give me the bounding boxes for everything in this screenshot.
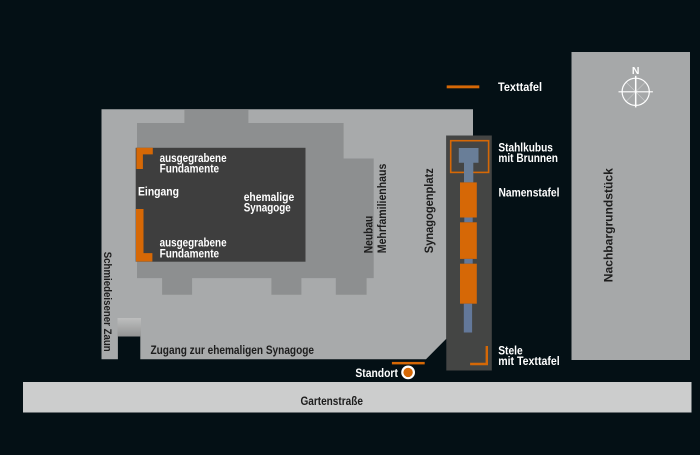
svg-text:Standort: Standort (355, 366, 398, 380)
svg-text:Synagogenplatz: Synagogenplatz (424, 168, 436, 253)
svg-text:Gartenstraße: Gartenstraße (300, 394, 363, 408)
svg-text:N: N (632, 65, 640, 77)
svg-text:Mehrfamilienhaus: Mehrfamilienhaus (377, 164, 389, 254)
svg-text:Schmiedeisener Zaun: Schmiedeisener Zaun (101, 252, 113, 352)
svg-text:Synagoge: Synagoge (244, 201, 291, 215)
svg-text:Neubau: Neubau (364, 216, 376, 254)
svg-text:Nachbargrundstück: Nachbargrundstück (601, 168, 615, 282)
svg-text:Eingang: Eingang (138, 184, 179, 198)
svg-text:Fundamente: Fundamente (160, 162, 220, 176)
svg-text:Namenstafel: Namenstafel (499, 185, 560, 199)
svg-text:Texttafel: Texttafel (498, 80, 542, 94)
svg-text:mit Brunnen: mit Brunnen (498, 151, 558, 165)
svg-text:Fundamente: Fundamente (160, 247, 220, 261)
svg-text:mit Texttafel: mit Texttafel (498, 354, 560, 368)
svg-text:Zugang zur ehemaligen Synagoge: Zugang zur ehemaligen Synagoge (151, 343, 315, 357)
